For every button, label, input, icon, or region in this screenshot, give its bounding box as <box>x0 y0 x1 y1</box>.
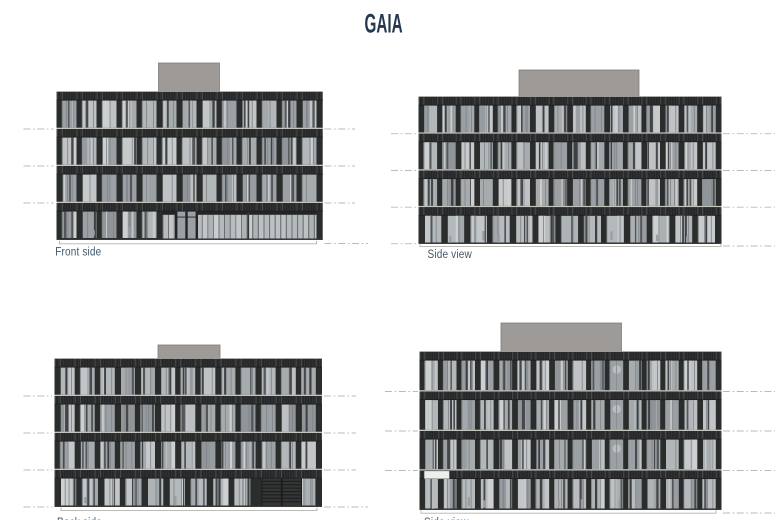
svg-text:Side view: Side view <box>424 516 469 520</box>
svg-text:Back side: Back side <box>57 516 102 520</box>
svg-text:Side view: Side view <box>428 248 473 261</box>
svg-text:GAIA: GAIA <box>365 8 403 39</box>
svg-text:Front side: Front side <box>55 246 101 259</box>
